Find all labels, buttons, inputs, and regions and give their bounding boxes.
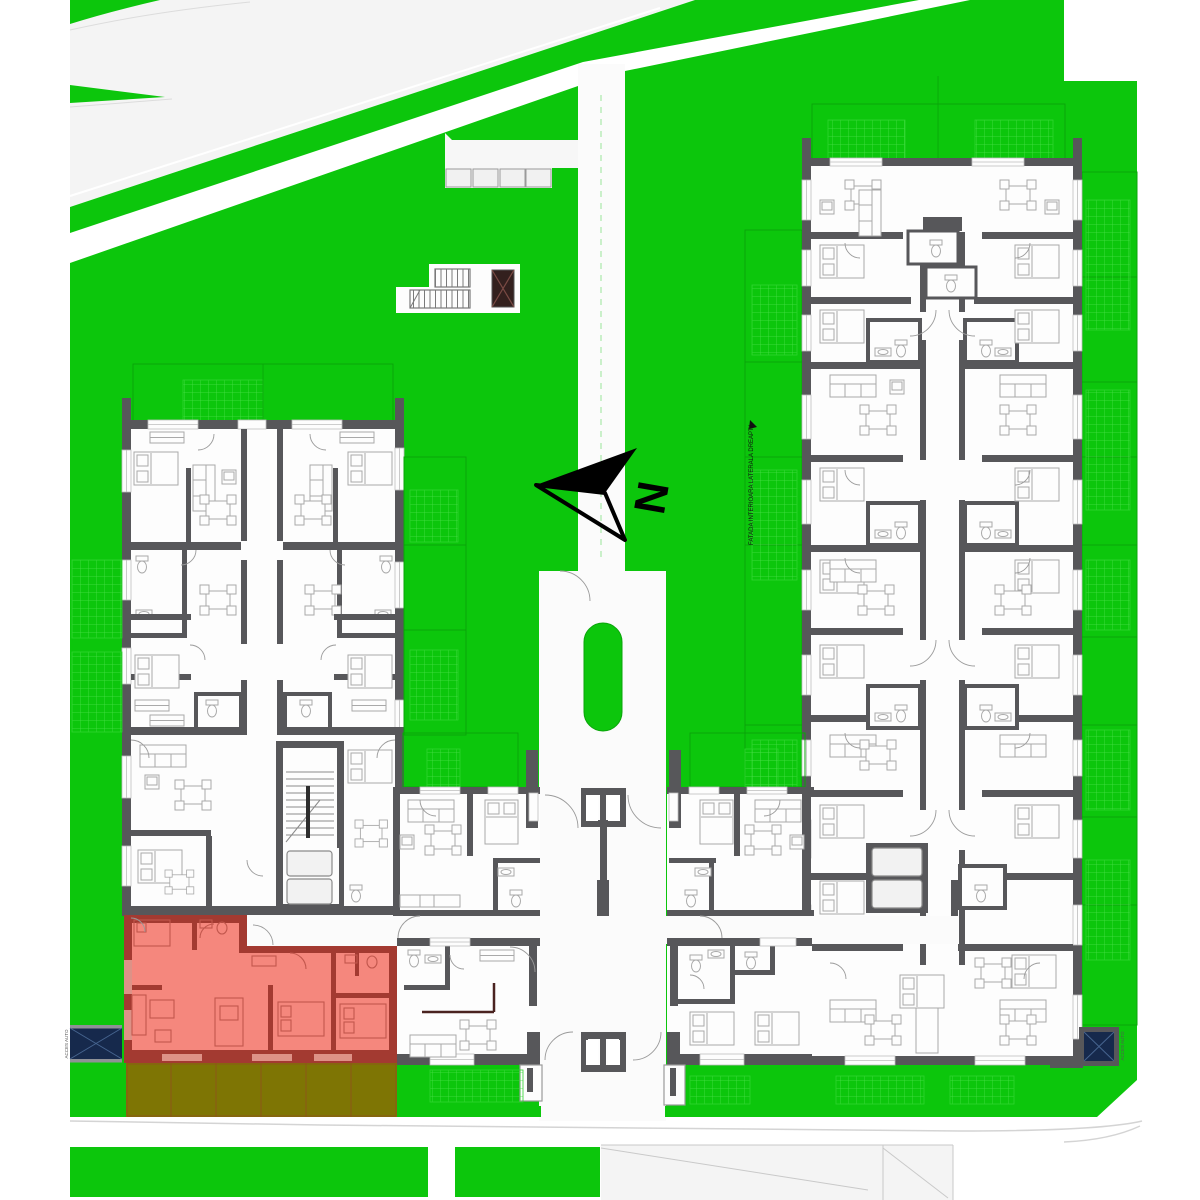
svg-text:ACCES AUTO: ACCES AUTO <box>64 1029 69 1058</box>
svg-text:ACCES AUTO: ACCES AUTO <box>1120 1031 1125 1060</box>
svg-text:FATADA INTERIOARA LATERALA DRE: FATADA INTERIOARA LATERALA DREAPTA <box>749 424 755 545</box>
